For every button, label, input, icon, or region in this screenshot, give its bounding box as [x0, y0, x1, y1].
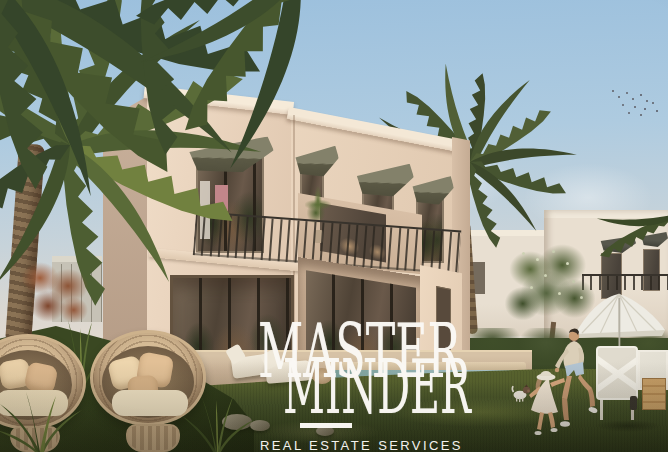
agave-plant — [0, 390, 88, 452]
dog-figure — [510, 384, 532, 402]
right-edge-palm-fronds — [636, 200, 668, 244]
cross-back-chair — [596, 346, 638, 400]
overhanging-palm-fronds — [0, 0, 390, 163]
bird-flock — [612, 90, 614, 92]
wooden-crate — [642, 378, 666, 410]
watermark-tagline: REAL ESTATE SERVICES — [260, 438, 463, 452]
garden-lantern — [630, 396, 637, 410]
chair-base — [126, 424, 180, 452]
blossoms — [522, 252, 525, 255]
watermark-brand-word-2: MINDER — [283, 350, 471, 426]
agave-plant — [174, 386, 260, 452]
outdoor-dining-set — [590, 336, 668, 432]
villa-render-photo: MASTER MINDER REAL ESTATE SERVICES — [0, 0, 668, 452]
chair-legs — [600, 400, 634, 420]
watermark-divider-line — [300, 423, 352, 428]
